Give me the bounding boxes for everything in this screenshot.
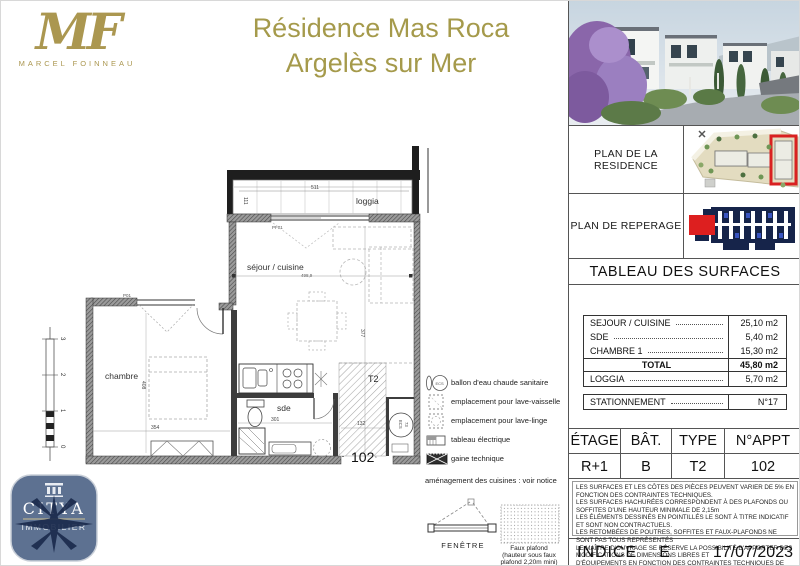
loggia-floor (233, 180, 412, 214)
dim-loggia-width: 511 (311, 185, 319, 191)
svg-text:ECS: ECS (436, 381, 445, 386)
wardrobe (151, 441, 213, 456)
toilet-tank (247, 400, 264, 407)
dim-chambre-height: 408 (140, 381, 146, 390)
unit-value-etage: R+1 (569, 454, 621, 479)
reperage-thumbnail (684, 194, 800, 258)
loggia-right-wall (412, 146, 419, 216)
entry-hall-hatched (339, 363, 386, 456)
loggia-left-wall (227, 180, 233, 216)
unit-value-appt: 102 (725, 454, 800, 479)
reperage-plan-row: PLAN DE REPERAGE (569, 194, 800, 259)
unit-header-bat: BÂT. (621, 429, 672, 454)
legend-label: gaine technique (451, 454, 504, 463)
info-sidebar: PLAN DE LA RESIDENCE (568, 1, 800, 566)
legend-item: tableau électrique (425, 430, 575, 449)
electrical-panel-icon (425, 433, 451, 447)
scale-tick: 0 (59, 445, 65, 449)
bottom-wall (86, 456, 341, 464)
dining-table (297, 301, 337, 341)
unit-type-label: T2 (368, 374, 379, 384)
surfaces-title: TABLEAU DES SURFACES (569, 259, 800, 285)
dishwasher-icon (425, 394, 451, 410)
room-label-loggia: loggia (356, 196, 379, 206)
scale-tick: 2 (59, 373, 65, 377)
dim-sejour-height: 377 (359, 329, 365, 338)
kitchen-note: aménagement des cuisines : voir notice (425, 476, 575, 485)
legend-item: emplacement pour lave-linge (425, 411, 575, 430)
dim-sde-width: 301 (271, 417, 280, 423)
unit-number-label: 102 (351, 449, 375, 465)
legend-item: emplacement pour lave-vaisselle (425, 392, 575, 411)
false-ceiling-legend (499, 504, 561, 549)
surfaces-table: SEJOUR / CUISINE 25,10 m2 SDE 5,40 m2 CH… (583, 315, 787, 387)
legend-item: gaine technique (425, 449, 575, 468)
reperage-plan-label: PLAN DE REPERAGE (569, 194, 684, 258)
room-label-chambre: chambre (105, 371, 138, 381)
room-label-sejour: séjour / cuisine (247, 262, 304, 272)
plan-legend: ECS ballon d'eau chaude sanitaire emplac… (425, 373, 575, 485)
ecs-label: ECS (398, 420, 403, 429)
citya-logo: CITYA IMMOBILIER (7, 471, 101, 566)
scale-tick: 1 (59, 409, 65, 413)
water-heater-icon: ECS (425, 374, 451, 392)
false-ceiling-caption: Faux plafond (hauteur sous faux plafond … (477, 545, 581, 566)
window-icon (426, 498, 500, 534)
label-p01: P01 (123, 293, 132, 298)
dim-loggia-height: 111 (242, 197, 248, 205)
bed (149, 357, 207, 419)
indice-label: INDICE (577, 544, 637, 562)
surface-row: SEJOUR / CUISINE 25,10 m2 (584, 316, 786, 330)
loggia-top-wall (227, 170, 420, 180)
revision-date: 17/07/2023 (713, 544, 793, 562)
window-legend: FENÊTRE (425, 498, 501, 550)
plan-sheet: MF MARCEL FOINNEAU Résidence Mas Roca Ar… (0, 0, 800, 566)
residence-plan-row: PLAN DE LA RESIDENCE (569, 126, 800, 194)
dim-ecs: 73 (404, 422, 409, 427)
chambre-left-wall (86, 298, 93, 463)
toilet (248, 408, 262, 427)
surfaces-section: TABLEAU DES SURFACES SEJOUR / CUISINE 25… (569, 259, 800, 429)
unit-value-type: T2 (672, 454, 725, 479)
site-plan-thumbnail (684, 126, 800, 193)
sofa (369, 247, 413, 303)
surface-row: CHAMBRE 1 15,30 m2 (584, 344, 786, 358)
label-pf01: PF01 (272, 225, 283, 230)
room-label-sde: sde (277, 403, 291, 413)
legend-label: emplacement pour lave-vaisselle (451, 397, 560, 406)
unit-header-etage: ÉTAGE (569, 429, 621, 454)
residence-photo (569, 1, 800, 126)
unit-header-appt: N°APPT (725, 429, 800, 454)
surface-row: SDE 5,40 m2 (584, 330, 786, 344)
surface-total-row: TOTAL 45,80 m2 (584, 358, 786, 372)
legend-label: emplacement pour lave-linge (451, 416, 547, 425)
dim-chambre-width: 354 (151, 425, 160, 431)
surface-loggia-row: LOGGIA 5,70 m2 (584, 372, 786, 386)
unit-info-table: ÉTAGE BÂT. TYPE N°APPT R+1 B T2 102 (569, 429, 800, 479)
right-wall (414, 222, 420, 463)
residence-plan-label: PLAN DE LA RESIDENCE (569, 126, 684, 193)
spot-symbol (315, 371, 327, 387)
parking-row: STATIONNEMENT N°17 (583, 394, 787, 410)
legend-label: tableau électrique (451, 435, 510, 444)
scale-tick: 3 (59, 337, 65, 341)
dim-palier-width: 132 (357, 421, 366, 427)
legal-notes: LES SURFACES ET LES CÔTES DES PIÈCES PEU… (569, 479, 800, 539)
legend-item: ECS ballon d'eau chaude sanitaire (425, 373, 575, 392)
unit-header-type: TYPE (672, 429, 725, 454)
false-ceiling-swatch (500, 504, 560, 544)
round-table (340, 259, 366, 285)
reperage-highlight-unit (689, 215, 715, 235)
technical-duct-icon (425, 452, 451, 466)
dim-sejour-width: 498,9 (301, 273, 313, 278)
unit-value-bat: B (621, 454, 672, 479)
indice-value: E (659, 544, 670, 562)
legend-label: ballon d'eau chaude sanitaire (451, 378, 548, 387)
washer-location (314, 440, 331, 457)
scale-ruler: 3 2 1 0 (42, 327, 65, 461)
washing-machine-icon (425, 413, 451, 429)
